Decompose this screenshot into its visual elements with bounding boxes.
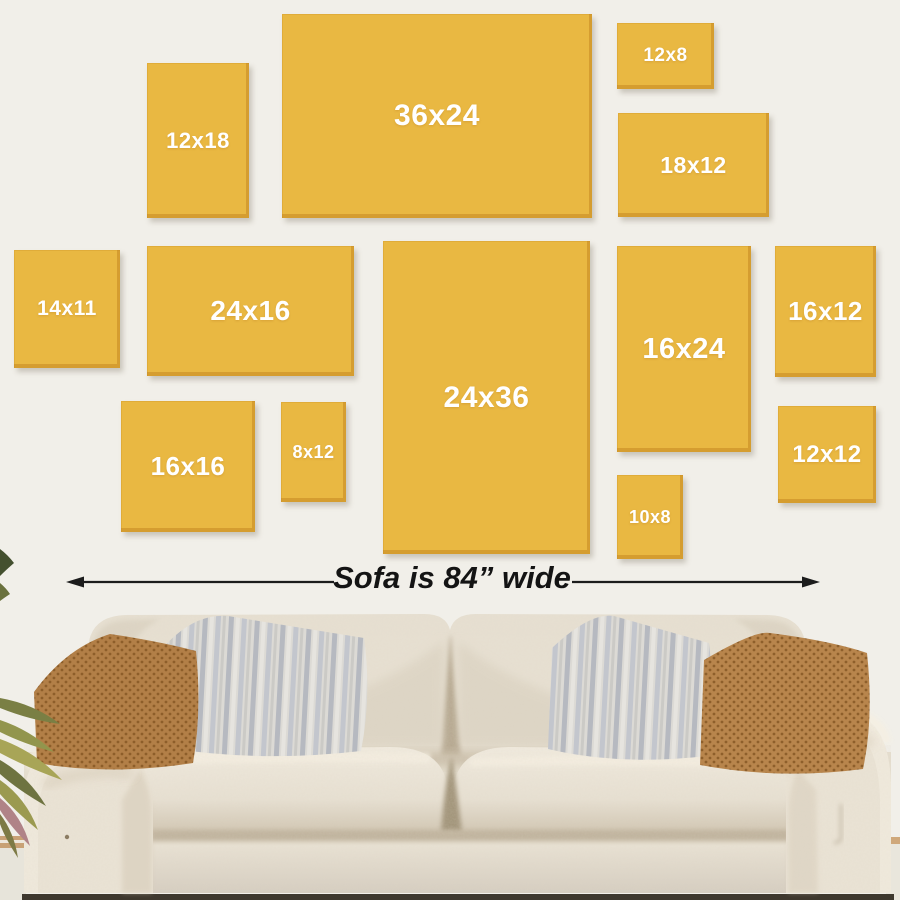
svg-text:Sofa is 84” wide: Sofa is 84” wide xyxy=(333,560,571,595)
